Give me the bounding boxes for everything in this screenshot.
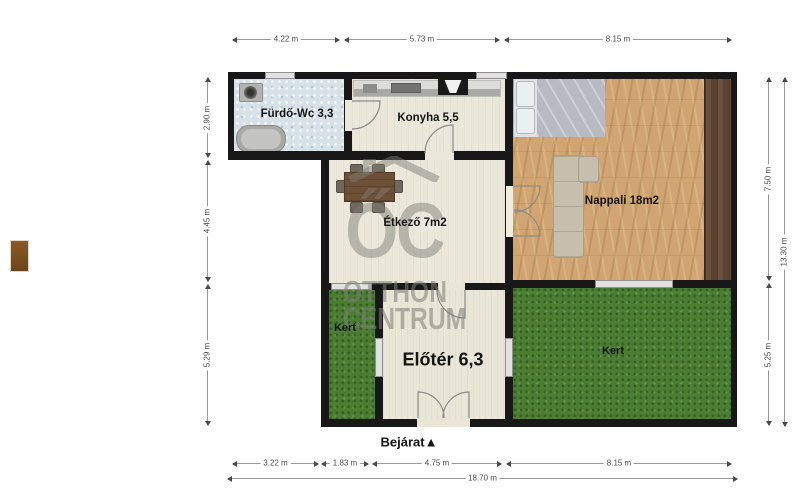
floor-plan: ŐC OTTHON CENTRUM Fürdő-Wc 3,3 Konyha 5,… xyxy=(0,0,797,500)
dimension-right-total: 13.30 m xyxy=(784,78,785,426)
entrance-label: Bejárat▲ xyxy=(381,435,438,450)
dimension-top-1: 4.22 m xyxy=(233,39,339,40)
wall xyxy=(228,72,234,159)
room-label-hallway: Előtér 6,3 xyxy=(402,350,483,371)
wall xyxy=(228,151,513,160)
room-label-bathroom: Fürdő-Wc 3,3 xyxy=(261,108,334,120)
dimension-bottom-3: 4.75 m xyxy=(373,463,501,464)
dimension-top-2: 5.73 m xyxy=(345,39,499,40)
kitchen-sink xyxy=(363,84,377,93)
dimension-bottom-4: 8.15 m xyxy=(507,463,731,464)
wall xyxy=(731,72,737,427)
door-opening xyxy=(345,100,352,131)
dimension-left-1: 2.90 m xyxy=(207,78,208,157)
chair xyxy=(350,202,363,213)
room-label-garden-right: Kert xyxy=(602,345,624,357)
wall xyxy=(321,419,737,427)
toilet-bowl xyxy=(244,86,257,99)
window xyxy=(595,280,673,288)
window xyxy=(375,338,383,377)
garden-left-grass xyxy=(329,285,375,421)
room-label-kitchen: Konyha 5,5 xyxy=(397,112,458,124)
stove xyxy=(391,83,421,93)
dimension-top-3: 8.15 m xyxy=(505,39,731,40)
pillow xyxy=(516,108,535,134)
chair xyxy=(372,202,385,213)
dimension-left-2: 4.45 m xyxy=(207,161,208,281)
door-swatch xyxy=(10,240,29,272)
pillow xyxy=(516,81,535,107)
bathtub-basin xyxy=(241,129,281,149)
window xyxy=(265,72,295,79)
door-opening xyxy=(438,283,465,290)
entrance-door-opening xyxy=(417,419,470,427)
window xyxy=(476,72,507,79)
door-opening xyxy=(506,186,513,237)
dimension-bottom-2: 1.83 m xyxy=(322,463,368,464)
room-label-dining: Étkező 7m2 xyxy=(383,217,446,229)
bed-blanket xyxy=(537,79,605,137)
room-label-garden-left: Kert xyxy=(334,322,356,334)
dimension-left-3: 5.29 m xyxy=(207,285,208,425)
dimension-bottom-total: 18.70 m xyxy=(228,478,737,479)
window xyxy=(505,338,513,377)
dimension-right-1: 7.50 m xyxy=(768,78,769,280)
window xyxy=(331,283,372,290)
dimension-right-2: 5.25 m xyxy=(768,284,769,425)
dining-table xyxy=(344,172,395,202)
sofa-chaise xyxy=(578,156,599,183)
room-label-living-room: Nappali 18m2 xyxy=(585,195,659,207)
wardrobe xyxy=(704,79,732,280)
door-opening xyxy=(425,151,454,160)
dimension-bottom-1: 3.22 m xyxy=(233,463,318,464)
